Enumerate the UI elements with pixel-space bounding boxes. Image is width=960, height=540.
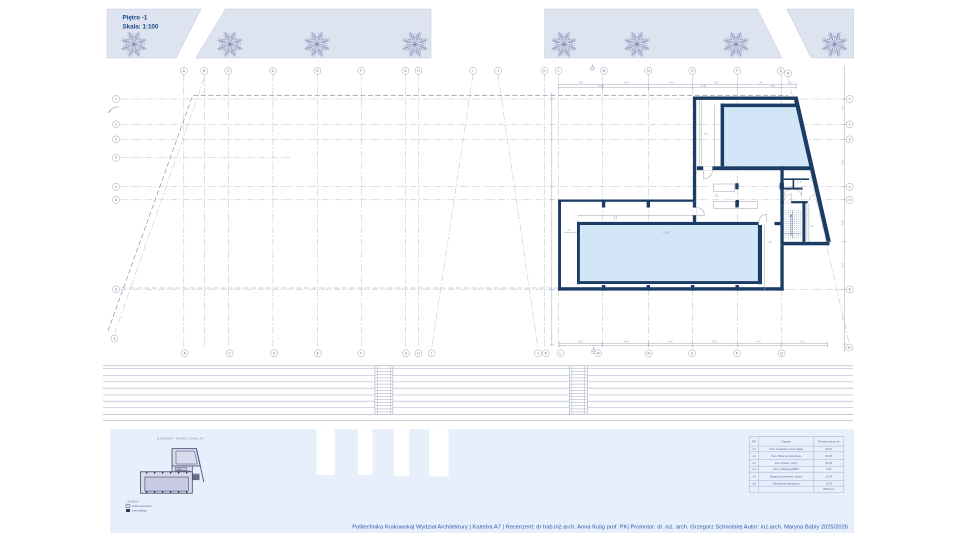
svg-text:2: 2 bbox=[849, 123, 851, 127]
svg-text:O: O bbox=[691, 69, 694, 73]
svg-text:31.05: 31.05 bbox=[826, 455, 833, 458]
svg-text:84.09: 84.09 bbox=[826, 462, 833, 465]
svg-text:F: F bbox=[360, 352, 362, 356]
svg-text:-1.2: -1.2 bbox=[714, 194, 719, 197]
svg-text:3: 3 bbox=[849, 138, 851, 142]
svg-text:pom. instalacyjne/BMS: pom. instalacyjne/BMS bbox=[773, 468, 799, 471]
svg-text:NP: NP bbox=[752, 439, 756, 443]
svg-text:LEGENDA: LEGENDA bbox=[127, 499, 140, 503]
svg-text:7.59: 7.59 bbox=[578, 81, 583, 84]
svg-text:Skala: 1:100: Skala: 1:100 bbox=[123, 24, 159, 31]
svg-text:-1.1: -1.1 bbox=[704, 133, 709, 136]
svg-text:Pom. filtrów (oczyszczania: Pom. filtrów (oczyszczania bbox=[771, 455, 801, 458]
svg-text:-1.3: -1.3 bbox=[752, 462, 757, 465]
svg-text:9.10: 9.10 bbox=[800, 341, 805, 344]
svg-text:4: 4 bbox=[849, 185, 851, 189]
svg-text:3: 3 bbox=[115, 138, 117, 142]
svg-text:POM.: POM. bbox=[177, 469, 182, 471]
svg-text:J: J bbox=[497, 69, 499, 73]
svg-text:Powierzchnia m²: Powierzchnia m² bbox=[818, 439, 839, 443]
svg-text:13.78: 13.78 bbox=[826, 475, 833, 478]
svg-text:2: 2 bbox=[115, 123, 117, 127]
svg-text:6: 6 bbox=[115, 288, 117, 292]
svg-text:M: M bbox=[602, 69, 605, 73]
svg-text:SCHEMAT FUNKCJONALNY: SCHEMAT FUNKCJONALNY bbox=[157, 437, 204, 441]
svg-text:1: 1 bbox=[115, 97, 117, 101]
svg-text:-1.3: -1.3 bbox=[613, 216, 618, 219]
svg-text:Rozdzielnia elektryczna: Rozdzielnia elektryczna bbox=[773, 482, 800, 485]
svg-text:6.95: 6.95 bbox=[841, 220, 844, 225]
svg-text:L: L bbox=[558, 69, 560, 73]
svg-text:-1.5: -1.5 bbox=[752, 475, 757, 478]
svg-text:3.10: 3.10 bbox=[788, 81, 793, 84]
svg-text:Q: Q bbox=[779, 69, 782, 73]
svg-text:4.42: 4.42 bbox=[756, 341, 761, 344]
svg-text:5.90: 5.90 bbox=[712, 341, 717, 344]
svg-text:Pom. Niecka i pomp: Pom. Niecka i pomp bbox=[775, 462, 798, 465]
svg-text:14.40: 14.40 bbox=[700, 85, 707, 88]
svg-text:26.43: 26.43 bbox=[826, 482, 833, 485]
svg-text:Q: Q bbox=[780, 352, 783, 356]
svg-text:-1.6: -1.6 bbox=[752, 482, 757, 485]
svg-text:9.42: 9.42 bbox=[826, 468, 831, 471]
svg-text:strefa techniczna: strefa techniczna bbox=[132, 504, 152, 508]
svg-text:G: G bbox=[405, 352, 408, 356]
svg-text:Pom. wentylacji i rozdz ciepłe: Pom. wentylacji i rozdz ciepłej bbox=[769, 448, 803, 451]
svg-text:J: J bbox=[537, 352, 539, 356]
svg-text:12.59: 12.59 bbox=[598, 85, 605, 88]
svg-text:-1.4: -1.4 bbox=[752, 468, 757, 471]
svg-text:6.40: 6.40 bbox=[668, 341, 673, 344]
svg-text:1: 1 bbox=[849, 97, 851, 101]
svg-text:4: 4 bbox=[115, 185, 117, 189]
svg-text:9.10: 9.10 bbox=[841, 263, 844, 268]
svg-text:6: 6 bbox=[849, 288, 851, 292]
svg-text:I: I bbox=[431, 352, 432, 356]
svg-text:4.42: 4.42 bbox=[669, 81, 674, 84]
svg-text:80.16: 80.16 bbox=[826, 448, 833, 451]
svg-text:Nazwa: Nazwa bbox=[782, 439, 791, 443]
svg-text:Politechnika Krakowska| Wydzia: Politechnika Krakowska| Wydział Architek… bbox=[352, 525, 848, 531]
svg-text:I: I bbox=[472, 69, 473, 73]
svg-text:5.90: 5.90 bbox=[714, 81, 719, 84]
svg-text:8.80: 8.80 bbox=[841, 160, 844, 165]
svg-text:9.84: 9.84 bbox=[624, 81, 629, 84]
svg-text:5: 5 bbox=[849, 198, 851, 202]
svg-text:5: 5 bbox=[115, 198, 117, 202]
svg-text:L: L bbox=[560, 352, 562, 356]
svg-text:-1.1: -1.1 bbox=[752, 448, 757, 451]
svg-text:7.48: 7.48 bbox=[770, 85, 775, 88]
svg-text:-1.2: -1.2 bbox=[752, 455, 757, 458]
svg-text:14.64: 14.64 bbox=[663, 231, 670, 235]
svg-text:Magazyn+pomieszcz. chemii: Magazyn+pomieszcz. chemii bbox=[770, 475, 802, 478]
svg-text:F: F bbox=[360, 69, 362, 73]
svg-text:9: 9 bbox=[114, 337, 116, 341]
svg-text:8.84: 8.84 bbox=[624, 341, 629, 344]
svg-text:Piętro -1: Piętro -1 bbox=[123, 15, 148, 22]
svg-text:O: O bbox=[691, 352, 694, 356]
svg-text:4.25: 4.25 bbox=[578, 341, 583, 344]
svg-text:G: G bbox=[404, 69, 407, 73]
svg-text:1.48: 1.48 bbox=[758, 81, 763, 84]
svg-text:256.52 m²: 256.52 m² bbox=[823, 488, 834, 491]
svg-text:3.10: 3.10 bbox=[841, 105, 844, 110]
svg-text:M: M bbox=[597, 352, 600, 356]
svg-text:komunikacja: komunikacja bbox=[132, 509, 147, 513]
